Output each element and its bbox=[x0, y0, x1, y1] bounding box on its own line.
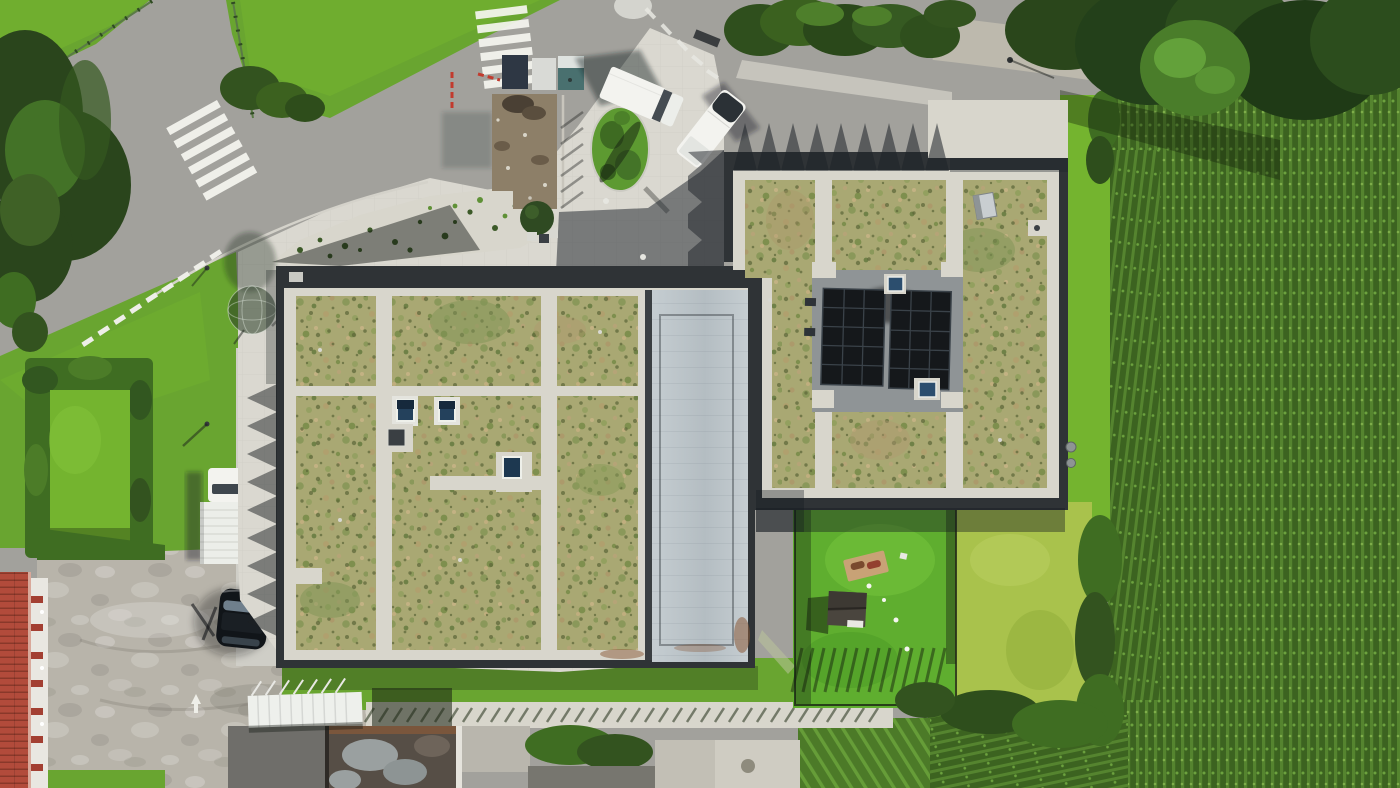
north-gravel-walkway bbox=[928, 100, 1068, 158]
gravel-strip bbox=[376, 296, 392, 650]
left-building-roof: Main building sedum green roof bbox=[276, 266, 755, 668]
gravel-strip bbox=[296, 386, 638, 396]
truck-windshield bbox=[212, 484, 240, 494]
skylight bbox=[496, 452, 532, 492]
red-roof-building bbox=[0, 572, 48, 788]
roof-vent-unit bbox=[973, 192, 997, 219]
playhouse bbox=[827, 591, 867, 628]
right-building-roof: Annex building green roof with solar arr… bbox=[724, 152, 1068, 510]
concrete-pad bbox=[655, 740, 800, 788]
skylight bbox=[914, 378, 940, 400]
skylight bbox=[884, 274, 906, 294]
ball bbox=[905, 647, 910, 652]
box-truck-white bbox=[186, 468, 244, 564]
solar-array bbox=[889, 290, 952, 390]
aerial-photo: Aerial drone view of two flat-roof build… bbox=[0, 0, 1400, 788]
ball bbox=[867, 584, 872, 589]
gravel-strip bbox=[541, 296, 557, 650]
vegetable-rows bbox=[798, 718, 930, 788]
skylight bbox=[392, 396, 418, 426]
skylight bbox=[434, 397, 460, 425]
ball bbox=[894, 618, 899, 623]
aerial-photo-canvas: Aerial drone view of two flat-roof build… bbox=[0, 0, 1400, 788]
ball bbox=[882, 598, 886, 602]
asphalt-patch bbox=[228, 726, 332, 788]
roof-vent-unit bbox=[381, 424, 413, 452]
solar-array bbox=[821, 288, 885, 386]
roof-hatch bbox=[289, 272, 303, 282]
red-tile-roof bbox=[0, 572, 30, 788]
container-roof bbox=[325, 726, 462, 788]
material-pallets bbox=[502, 55, 584, 90]
east-yellow-lawn bbox=[952, 502, 1092, 718]
